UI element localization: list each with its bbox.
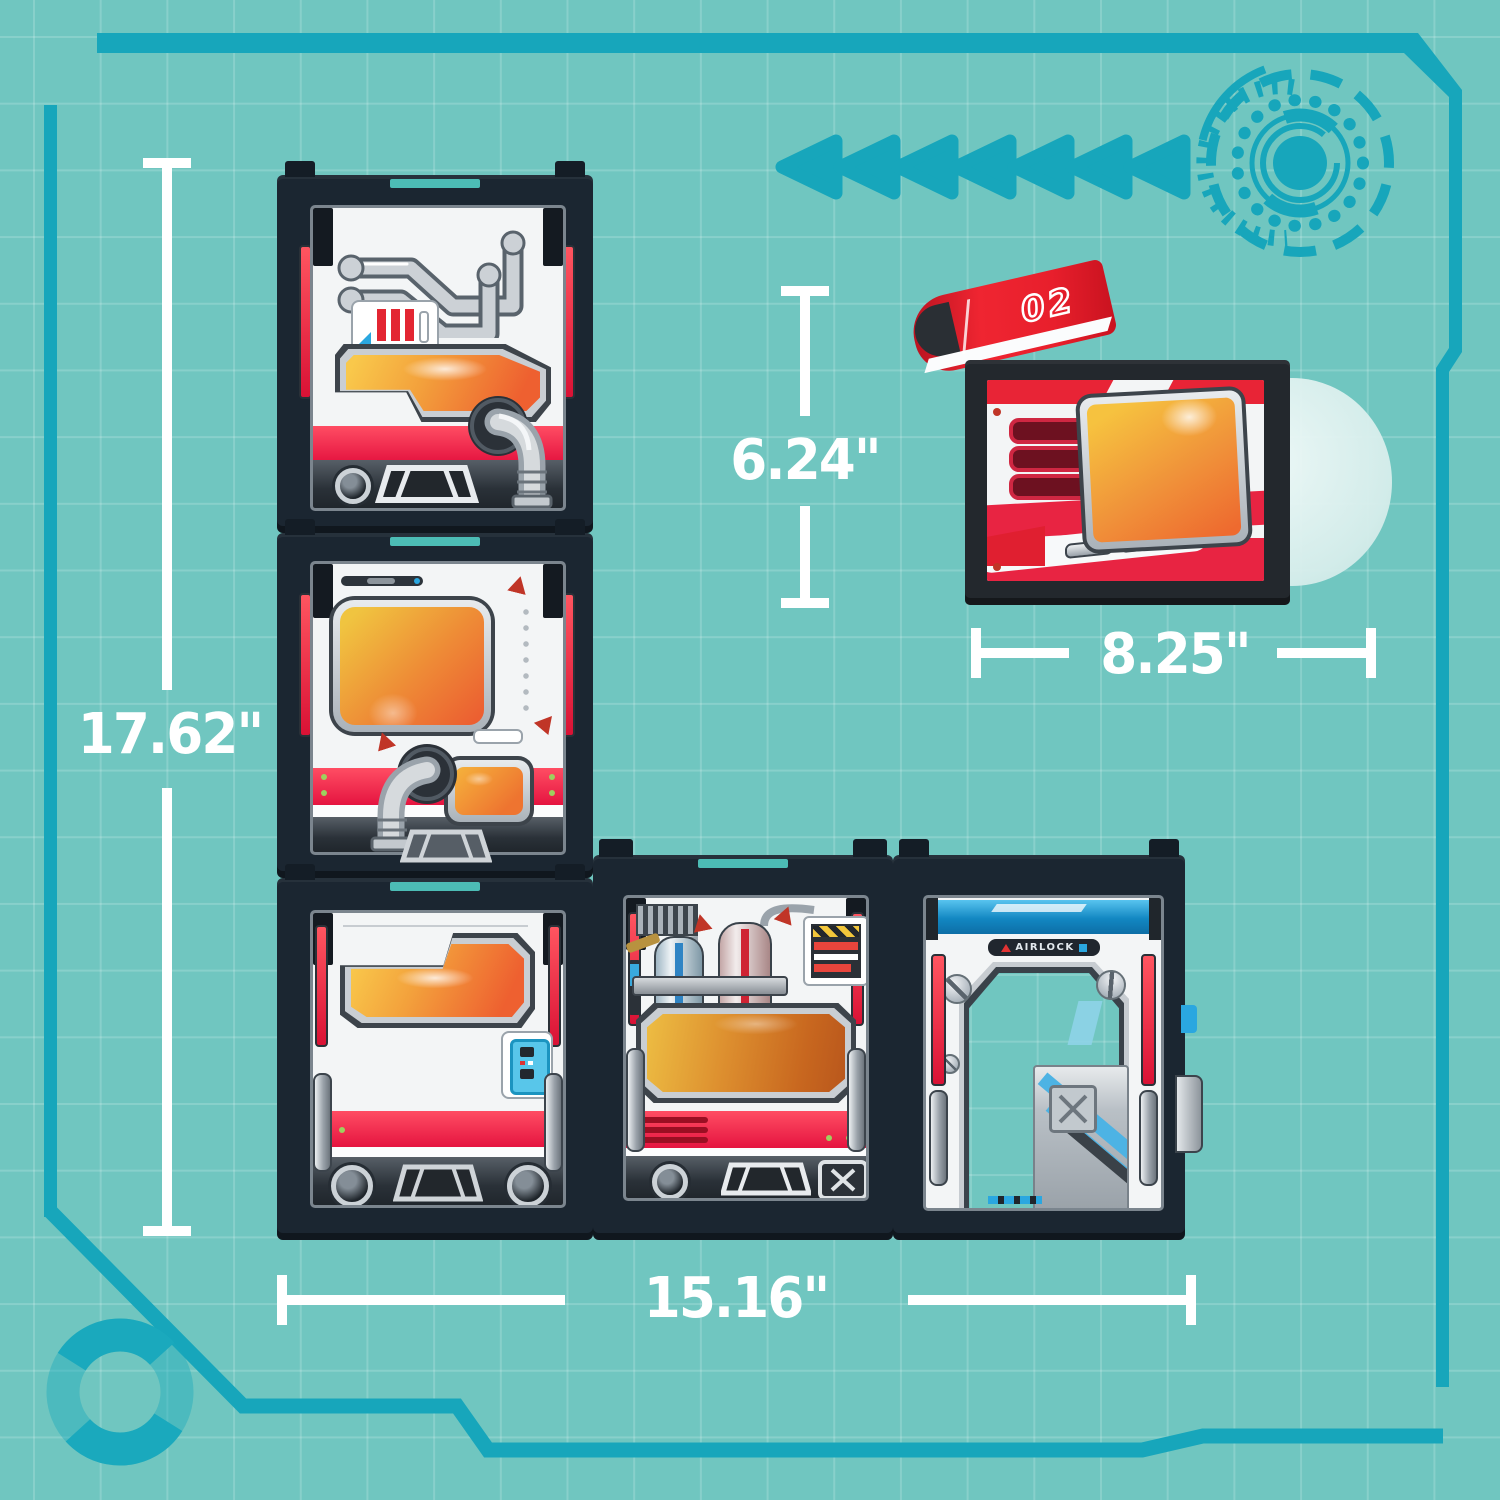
exhaust-port [507, 1165, 549, 1207]
small-module-width-label: 8.25" [1071, 622, 1280, 687]
status-strip [341, 576, 423, 586]
tech-dial-icon [1178, 41, 1423, 286]
hazard-placard [803, 916, 869, 986]
exhaust-port [331, 1165, 373, 1207]
vent-grate [721, 1162, 811, 1196]
airlock-label: AIRLOCK [988, 939, 1100, 956]
wide-window [636, 1003, 856, 1103]
diagram-canvas: 17.62" 6.24" 8.25" 15.16" [0, 0, 1500, 1500]
exhaust-port [652, 1164, 688, 1200]
left-arrow-icons [782, 141, 1184, 193]
floor-lights [988, 1196, 1042, 1204]
red-stripe [313, 1111, 563, 1147]
blue-latch [1181, 1005, 1197, 1033]
angled-window [340, 933, 535, 1028]
orange-screen [1075, 386, 1253, 555]
vent-grate [393, 1163, 483, 1203]
blue-square-icon [1079, 944, 1087, 952]
small-module-height-label: 6.24" [705, 428, 905, 493]
module-cargo-window [277, 878, 593, 1240]
module-detached-screen [965, 360, 1290, 605]
warning-icon [507, 574, 530, 595]
ring-icon [41, 1313, 198, 1470]
module-porthole [277, 533, 593, 878]
connector-clip [390, 179, 480, 188]
module-airlock: AIRLOCK [893, 855, 1185, 1240]
tank-crossbar [632, 976, 788, 996]
large-porthole-window [329, 596, 495, 736]
airlock-label-text: AIRLOCK [1015, 942, 1074, 953]
slot [473, 729, 523, 744]
exhaust-port [335, 468, 371, 504]
blue-beam [934, 900, 1153, 934]
red-band [626, 1111, 866, 1148]
module-pipes [277, 175, 593, 533]
indicator-dots [523, 604, 529, 716]
blue-wedge [1068, 1001, 1103, 1045]
hatch-icon [818, 1160, 868, 1200]
stack-height-label: 17.62" [61, 702, 280, 767]
row-width-label: 15.16" [594, 1266, 879, 1331]
equipment-box [1033, 1065, 1129, 1211]
vent-grate [400, 829, 492, 863]
side-handle [1175, 1075, 1203, 1153]
warning-triangle-icon [1001, 944, 1011, 952]
elbow-pipe-icon [453, 396, 558, 508]
dimension-line-stack-height [143, 158, 191, 1236]
screw-icon [942, 974, 972, 1004]
module-tanks [593, 855, 893, 1240]
